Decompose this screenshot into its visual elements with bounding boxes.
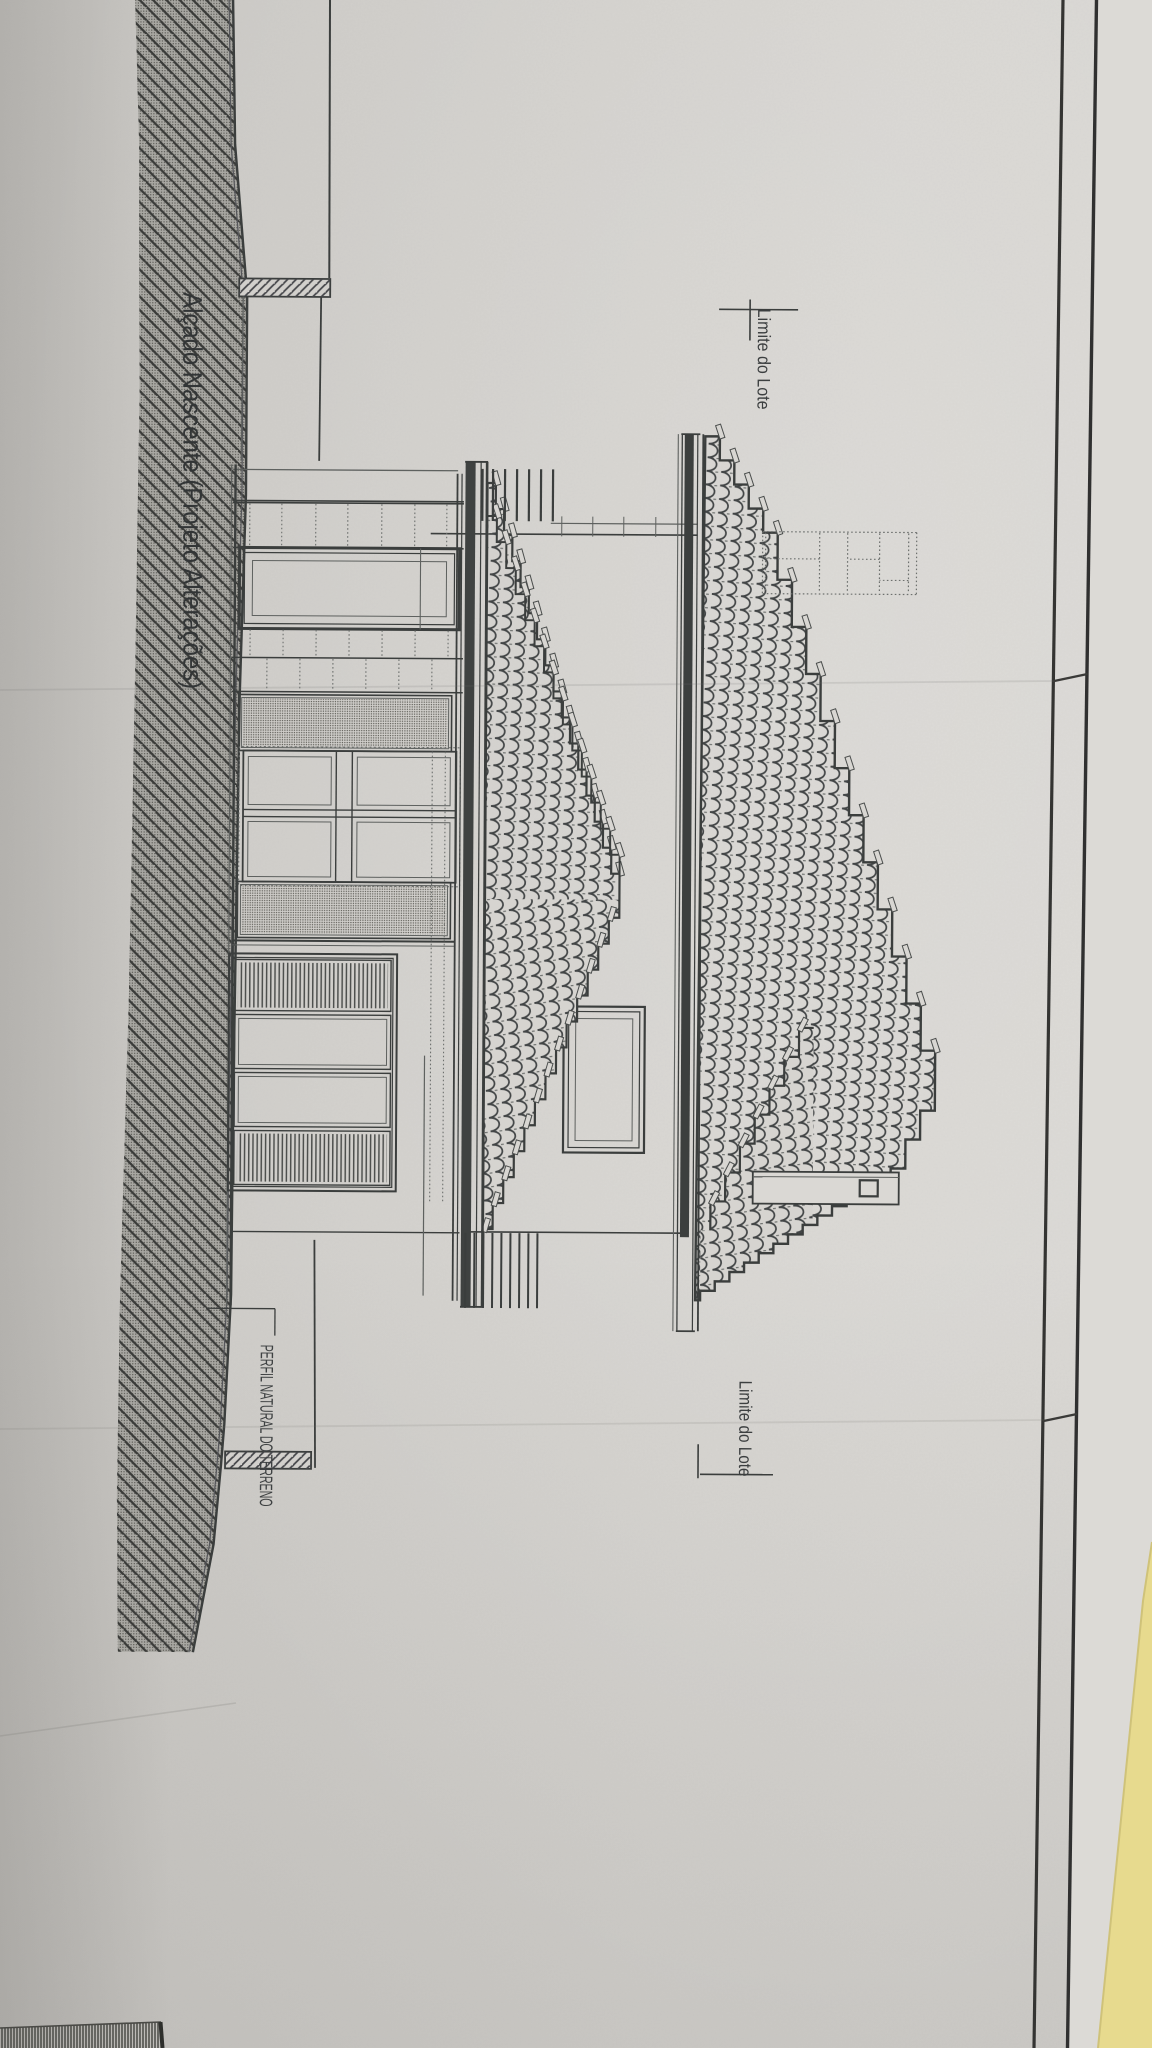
svg-text:Alçado Nascente (Projeto Alter: Alçado Nascente (Projeto Alterações) [177, 292, 207, 689]
svg-text:Limite do Lote: Limite do Lote [753, 309, 774, 410]
svg-text:PERFIL NATURAL DO TERRENO: PERFIL NATURAL DO TERRENO [256, 1345, 277, 1507]
svg-text:Limite do Lote: Limite do Lote [735, 1380, 756, 1476]
